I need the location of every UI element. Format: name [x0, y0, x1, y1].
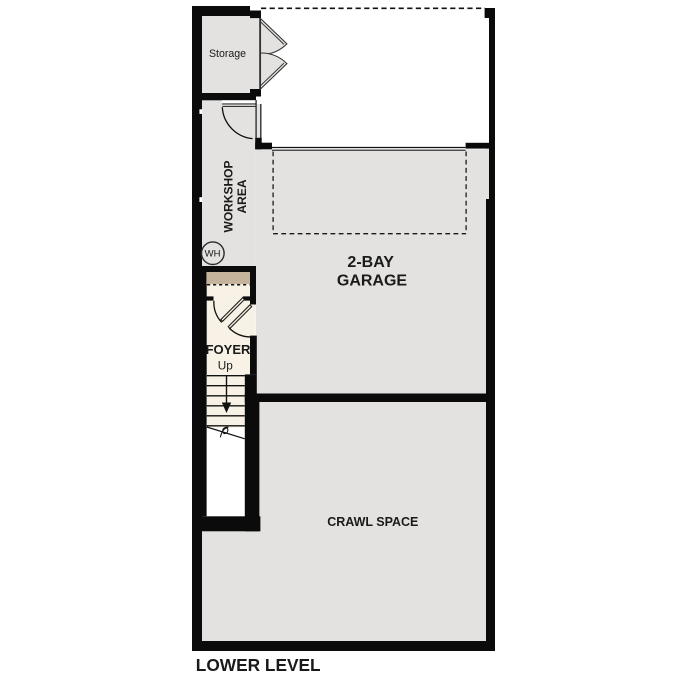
svg-text:WH: WH — [205, 249, 221, 260]
svg-text:WORKSHOP: WORKSHOP — [221, 160, 235, 232]
svg-text:CRAWL SPACE: CRAWL SPACE — [327, 515, 418, 529]
svg-text:Storage: Storage — [209, 48, 246, 60]
svg-text:2-BAY: 2-BAY — [347, 254, 394, 271]
svg-text:FOYER: FOYER — [206, 342, 251, 357]
svg-text:AREA: AREA — [235, 179, 249, 213]
svg-text:LOWER LEVEL: LOWER LEVEL — [196, 655, 321, 675]
svg-text:GARAGE: GARAGE — [337, 273, 408, 290]
svg-text:Up: Up — [218, 359, 234, 373]
